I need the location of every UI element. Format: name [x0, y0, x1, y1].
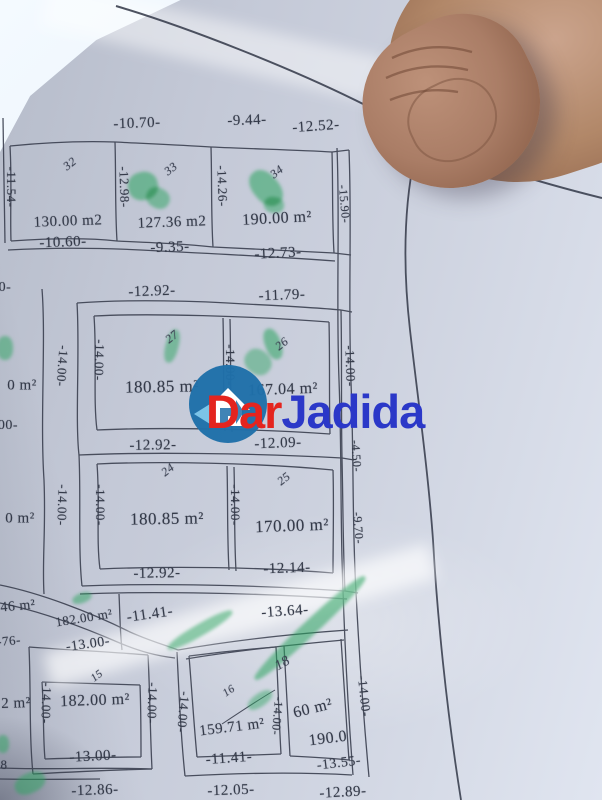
plot-number: 33 [161, 159, 180, 179]
dimension-label: -15.90- [335, 184, 353, 224]
watermark-text-jadida: Jadida [281, 385, 424, 438]
dimension-label: -14.00- [354, 675, 374, 718]
dimension-label: -9.44- [227, 112, 267, 130]
dimension-label: -12.98- [115, 166, 132, 208]
dimension-label: -14.00- [37, 682, 54, 724]
dimension-label: -14.00- [53, 345, 72, 387]
dimension-label: -13.55- [316, 753, 362, 774]
dimension-label: -12.92- [128, 283, 176, 302]
area-label: 0 m² [7, 378, 36, 395]
dimension-label: -14.26- [213, 165, 230, 207]
dimension-label: -13.64- [261, 602, 309, 622]
dimension-label: -14.00- [143, 682, 160, 724]
dimension-label: -9.35- [150, 239, 190, 257]
area-label: 127.36 m2 [137, 213, 206, 232]
dimension-label: -11.41- [205, 749, 253, 769]
dimension-label: -13.00- [65, 634, 111, 656]
photo-of-land-plot-plan: -10.70--9.44--12.52-323334-11.54--12.98-… [0, 0, 602, 800]
dimension-label: 8 [1, 757, 8, 773]
dimension-label: -76- [0, 632, 21, 650]
dimension-label: -11.41- [126, 603, 175, 626]
dimension-label: -12.73- [254, 244, 302, 263]
dimension-label: -12.86- [71, 782, 119, 800]
dimension-label: -11.54- [3, 167, 19, 208]
watermark-text-dar: Dar [206, 385, 281, 438]
area-label: 182.00 m² [54, 606, 113, 631]
plot-number: 18 [273, 653, 294, 674]
area-label: 2 m² [1, 695, 31, 713]
dimension-label: -10.60- [39, 234, 87, 253]
watermark-text: DarJadida [206, 384, 424, 439]
area-label: 190.0 [308, 728, 348, 751]
plot-number: 16 [221, 683, 238, 700]
plot-number: 27 [162, 327, 181, 347]
dimension-label: -10.70- [113, 115, 161, 134]
area-label: 182.00 m² [60, 691, 130, 711]
plot-number: 25 [274, 469, 293, 489]
plot-number: 15 [89, 668, 106, 685]
watermark: DarJadida [180, 362, 480, 454]
dimension-label: -12.92- [133, 565, 181, 583]
plot-number: 34 [267, 162, 286, 182]
area-label: 190.00 m² [242, 208, 313, 230]
dimension-label: -9.70- [349, 512, 366, 545]
dimension-label: -14.00- [53, 484, 70, 526]
area-label: 170.00 m² [255, 515, 329, 538]
dimension-label: -12.14- [263, 560, 311, 579]
dimension-label: -11.79- [258, 287, 305, 306]
plot-number: 32 [60, 154, 79, 174]
area-label: 46 m² [0, 598, 36, 617]
area-label: 159.71 m² [198, 716, 265, 741]
area-label: 180.85 m² [130, 508, 204, 529]
dimension-label: -14.00- [92, 484, 108, 525]
dimension-label: -12.05- [207, 782, 255, 800]
dimension-label: -14.00- [173, 691, 193, 734]
dimension-label: -14.00- [268, 696, 286, 736]
dimension-label: -12.89- [319, 783, 367, 800]
area-label: 0 m² [5, 511, 34, 528]
dimension-label: -13.00- [69, 747, 117, 766]
area-label: 130.00 m2 [33, 212, 102, 231]
plot-number: 26 [272, 334, 291, 354]
dimension-label: -12.52- [292, 117, 340, 137]
area-label: 60 m² [292, 695, 335, 722]
dimension-label: -14.00- [227, 484, 243, 525]
dimension-label: -12.92- [129, 437, 177, 455]
plot-number: 24 [158, 460, 177, 480]
dimension-label: -14.00- [90, 339, 107, 381]
dimension-label: 0- [0, 280, 11, 296]
dimension-label: 00- [0, 418, 18, 434]
